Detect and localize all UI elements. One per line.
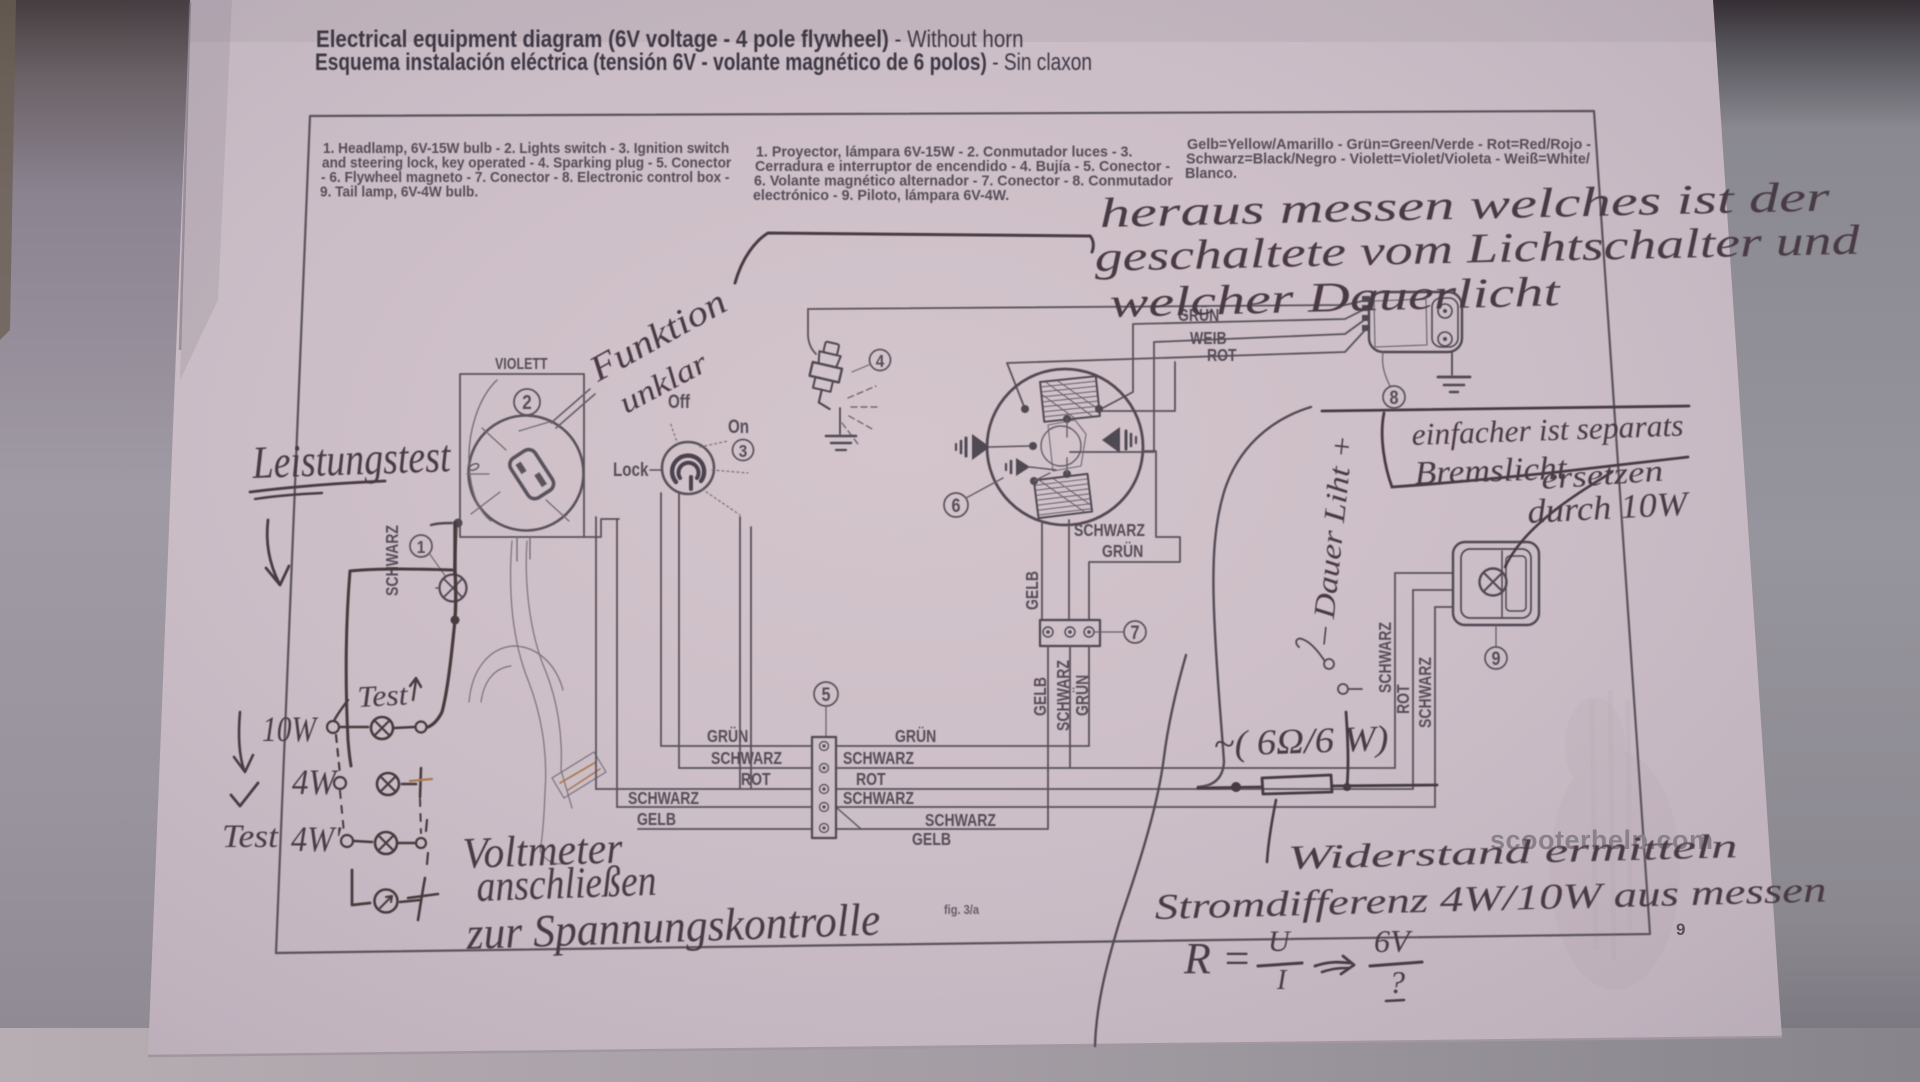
svg-text:Test: Test [222, 819, 279, 855]
svg-text:U: U [1268, 925, 1292, 958]
svg-text:ROT: ROT [1207, 345, 1237, 365]
svg-text:4W': 4W' [291, 819, 342, 859]
svg-text:4: 4 [876, 351, 885, 371]
svg-text:GELB: GELB [637, 809, 676, 829]
svg-text:ROT: ROT [741, 769, 771, 789]
svg-text:ROT: ROT [1393, 684, 1413, 714]
svg-text:GELB: GELB [1022, 571, 1042, 610]
svg-text:Blanco.: Blanco. [1185, 166, 1237, 182]
svg-text:GRÜN: GRÜN [1102, 540, 1143, 561]
svg-text:~( 6Ω/6 W): ~( 6Ω/6 W) [1213, 718, 1389, 764]
svg-text:Lock: Lock [613, 458, 649, 480]
svg-text:6V: 6V [1374, 923, 1413, 959]
svg-text:Schwarz=Black/Negro - Violett=: Schwarz=Black/Negro - Violett=Violet/Vio… [1186, 151, 1590, 167]
svg-text:VIOLETT: VIOLETT [495, 356, 548, 374]
svg-text:2: 2 [522, 391, 531, 414]
svg-text:4W: 4W [292, 762, 339, 802]
svg-text:8: 8 [1390, 387, 1399, 409]
svg-text:R =: R = [1183, 934, 1252, 983]
svg-text:10W: 10W [262, 709, 318, 749]
svg-text:electrónico - 9. Piloto, lámpa: electrónico - 9. Piloto, lámpara 6V-4W. [753, 188, 1009, 204]
svg-text:On: On [728, 415, 749, 437]
svg-text:fig. 3/a: fig. 3/a [944, 902, 979, 917]
svg-text:I: I [1276, 965, 1288, 996]
svg-text:GRÜN: GRÜN [895, 725, 936, 746]
svg-text:GRÜN: GRÜN [707, 725, 748, 746]
svg-text:9. Tail lamp, 6V-4W bulb.: 9. Tail lamp, 6V-4W bulb. [320, 184, 478, 201]
svg-text:5: 5 [822, 684, 831, 706]
svg-text:6: 6 [952, 495, 961, 517]
svg-text:SCHWARZ: SCHWARZ [843, 788, 914, 808]
svg-text:GELB: GELB [912, 829, 951, 849]
svg-text:SCHWARZ: SCHWARZ [1415, 657, 1435, 728]
svg-text:9: 9 [1676, 920, 1685, 939]
svg-text:1: 1 [417, 537, 426, 557]
svg-text:Test: Test [357, 678, 409, 714]
svg-text:3: 3 [739, 441, 748, 461]
svg-text:SCHWARZ: SCHWARZ [711, 748, 782, 768]
svg-text:Leistungstest: Leistungstest [251, 430, 452, 488]
svg-text:SCHWARZ: SCHWARZ [925, 810, 996, 830]
svg-text:SCHWARZ: SCHWARZ [628, 788, 699, 808]
svg-text:SCHWARZ: SCHWARZ [1375, 622, 1395, 693]
svg-text:SCHWARZ: SCHWARZ [843, 748, 914, 768]
svg-text:ROT: ROT [856, 769, 886, 789]
svg-text:SCHWARZ: SCHWARZ [1074, 520, 1145, 540]
svg-text:?: ? [1389, 964, 1405, 1000]
svg-text:9: 9 [1492, 648, 1501, 670]
svg-text:7: 7 [1131, 622, 1140, 644]
svg-text:SCHWARZ: SCHWARZ [382, 525, 402, 596]
svg-text:Esquema instalación eléctrica: Esquema instalación eléctrica (tensión 6… [315, 48, 1092, 76]
